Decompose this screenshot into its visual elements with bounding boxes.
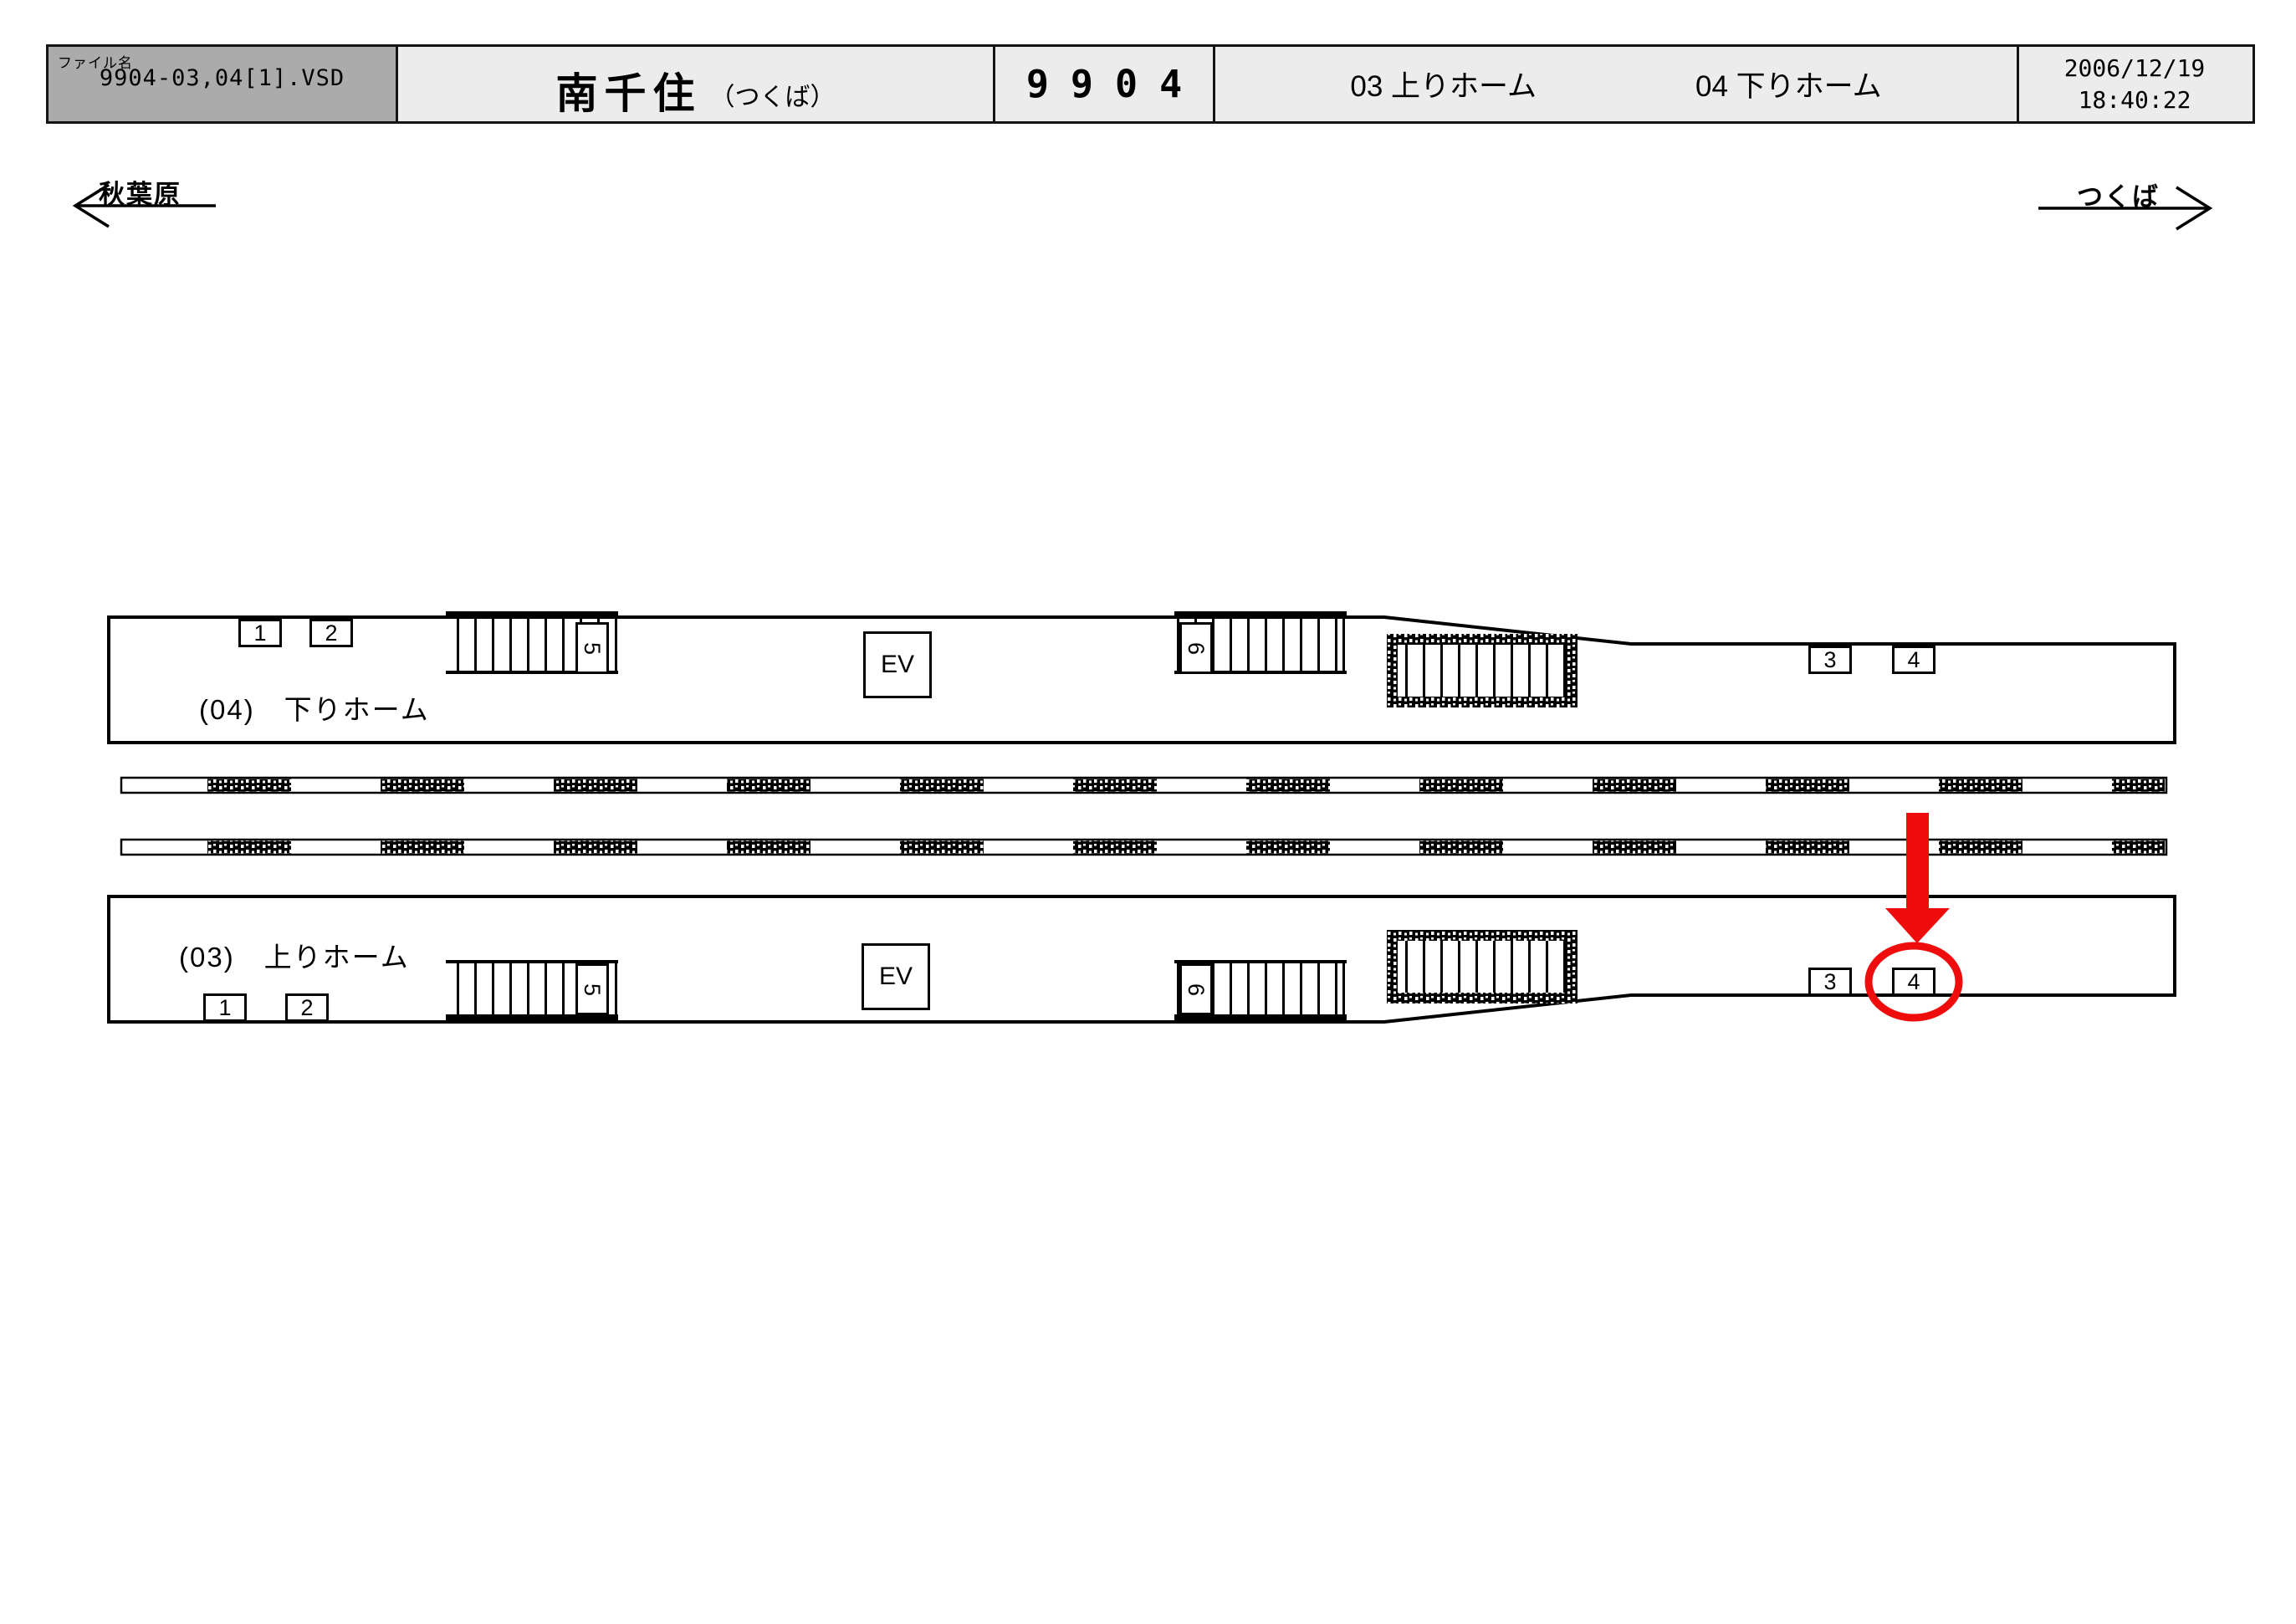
station-name-cell: 南千住 （つくば）	[398, 47, 995, 121]
elevator-lower: EV	[862, 943, 930, 1010]
upper-marker-3: 3	[1808, 646, 1852, 674]
lower-marker-2: 2	[285, 993, 329, 1022]
station-name: 南千住	[556, 60, 702, 120]
stair-number-5-lower: 5	[575, 963, 609, 1015]
print-date: 2006/12/19	[2064, 53, 2206, 84]
sheet-number-cell: 9904	[995, 47, 1215, 121]
lower-platform-label: (03) 上りホーム	[179, 935, 410, 975]
escalator-upper	[1387, 634, 1578, 707]
sheet-number: 9904	[1005, 62, 1204, 106]
direction-label-tsukuba: つくば	[2077, 176, 2160, 213]
stair-number-6-lower: 6	[1179, 963, 1213, 1015]
datetime-cell: 2006/12/19 18:40:22	[2019, 47, 2250, 121]
file-name-label: ファイル名	[58, 51, 133, 72]
file-name-value: 9904-03,04[1].VSD	[100, 65, 345, 91]
upper-platform-label: (04) 下りホーム	[199, 687, 430, 728]
elevator-upper: EV	[863, 631, 932, 698]
upper-marker-1: 1	[238, 619, 282, 647]
lower-marker-3: 3	[1808, 968, 1852, 996]
station-diagram-sheet: ファイル名 9904-03,04[1].VSD 南千住 （つくば） 9904 0…	[0, 0, 2296, 1624]
lower-marker-4-highlighted: 4	[1892, 968, 1935, 996]
stair-number-6-upper: 6	[1179, 622, 1213, 674]
upper-marker-4: 4	[1892, 646, 1935, 674]
track-upper	[121, 778, 2166, 793]
file-name-cell: ファイル名 9904-03,04[1].VSD	[49, 47, 398, 121]
escalator-lower	[1387, 930, 1578, 1004]
stair-number-5-upper: 5	[575, 622, 609, 674]
stair-number-5-upper-label: 5	[580, 641, 606, 654]
stair-number-5-lower-label: 5	[580, 983, 606, 995]
platform-03-title: 03 上りホーム	[1350, 63, 1537, 105]
stair-number-6-upper-label: 6	[1184, 641, 1209, 654]
station-line-note: （つくば）	[710, 76, 836, 113]
title-block: ファイル名 9904-03,04[1].VSD 南千住 （つくば） 9904 0…	[46, 44, 2255, 124]
upper-marker-2: 2	[309, 619, 353, 647]
lower-platform-outline	[109, 896, 2175, 1022]
diagram-drawing	[0, 0, 2296, 1624]
platform-04-title: 04 下りホーム	[1695, 63, 1882, 105]
lower-marker-1: 1	[203, 993, 247, 1022]
direction-label-akihabara: 秋葉原	[99, 173, 182, 211]
stair-number-6-lower-label: 6	[1184, 983, 1209, 995]
platform-titles-cell: 03 上りホーム 04 下りホーム	[1215, 47, 2019, 121]
print-time: 18:40:22	[2079, 84, 2191, 116]
track-lower	[121, 840, 2166, 855]
